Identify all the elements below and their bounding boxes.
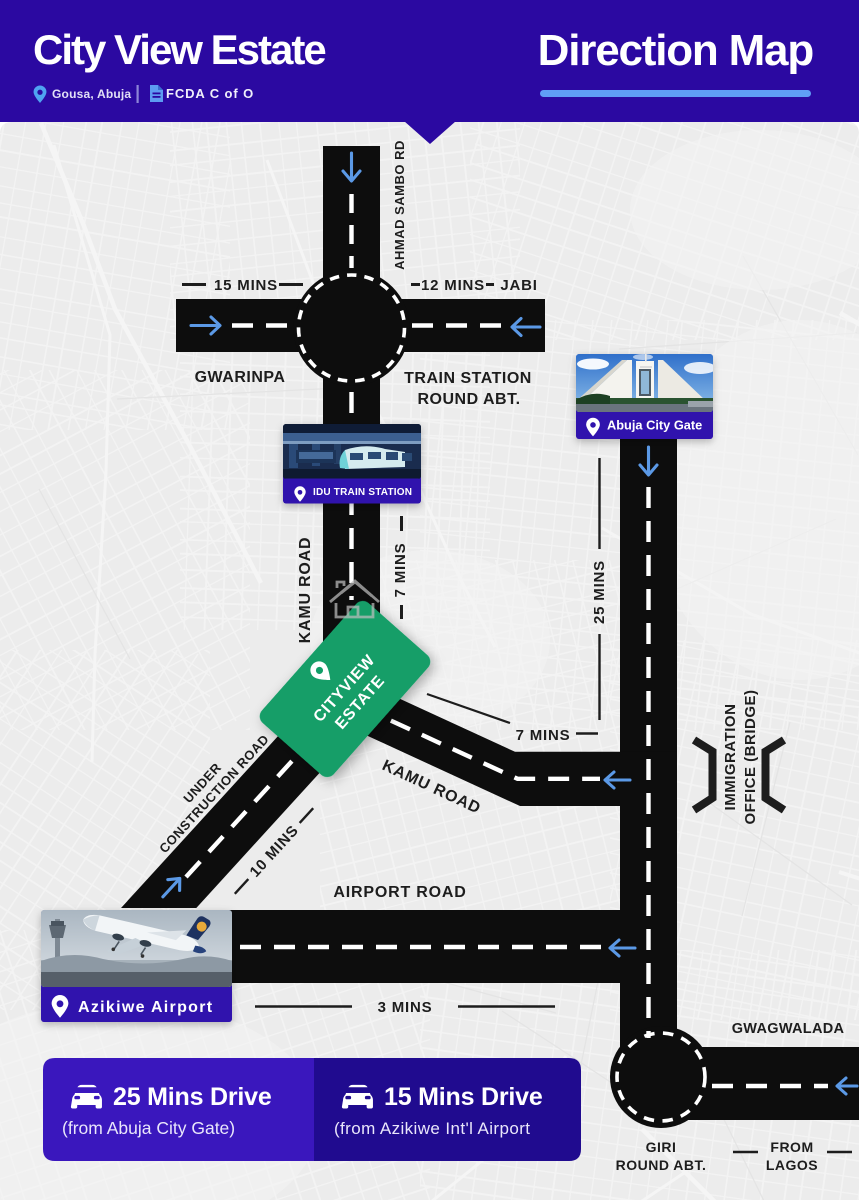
svg-text:JABI: JABI [500, 277, 537, 294]
svg-text:ROUND ABT.: ROUND ABT. [616, 1157, 707, 1173]
svg-text:3 MINS: 3 MINS [378, 999, 433, 1016]
svg-text:Abuja City Gate: Abuja City Gate [607, 418, 702, 433]
svg-text:ROUND ABT.: ROUND ABT. [417, 391, 520, 408]
svg-text:Direction Map: Direction Map [538, 26, 814, 75]
svg-text:LAGOS: LAGOS [766, 1157, 818, 1173]
svg-text:City View Estate: City View Estate [33, 26, 325, 73]
svg-text:Azikiwe Airport: Azikiwe Airport [78, 999, 213, 1016]
svg-text:GIRI: GIRI [646, 1139, 677, 1155]
svg-text:TRAIN STATION: TRAIN STATION [404, 370, 532, 387]
svg-text:IDU TRAIN STATION: IDU TRAIN STATION [313, 487, 412, 498]
svg-text:OFFICE (BRIDGE): OFFICE (BRIDGE) [742, 690, 759, 825]
svg-text:12 MINS: 12 MINS [421, 277, 485, 294]
svg-text:KAMU ROAD: KAMU ROAD [297, 537, 314, 644]
svg-text:Gousa, Abuja: Gousa, Abuja [52, 87, 131, 101]
svg-text:FROM: FROM [770, 1139, 813, 1155]
svg-text:GWAGWALADA: GWAGWALADA [732, 1021, 845, 1037]
svg-text:AIRPORT ROAD: AIRPORT ROAD [333, 884, 466, 901]
svg-text:7 MINS: 7 MINS [392, 543, 409, 598]
svg-text:(from Azikiwe Int'l Airport: (from Azikiwe Int'l Airport [334, 1119, 530, 1138]
svg-text:(from Abuja City Gate): (from Abuja City Gate) [62, 1118, 235, 1138]
svg-text:15 Mins Drive: 15 Mins Drive [384, 1083, 543, 1111]
svg-text:15 MINS: 15 MINS [214, 277, 278, 294]
svg-text:7 MINS: 7 MINS [516, 727, 571, 744]
svg-text:AHMAD SAMBO RD: AHMAD SAMBO RD [392, 140, 407, 270]
svg-text:GWARINPA: GWARINPA [195, 369, 286, 386]
svg-text:IMMIGRATION: IMMIGRATION [722, 704, 739, 811]
svg-text:25 Mins Drive: 25 Mins Drive [113, 1083, 272, 1111]
svg-text:FCDA C of O: FCDA C of O [166, 86, 254, 101]
svg-text:25 MINS: 25 MINS [591, 560, 608, 624]
